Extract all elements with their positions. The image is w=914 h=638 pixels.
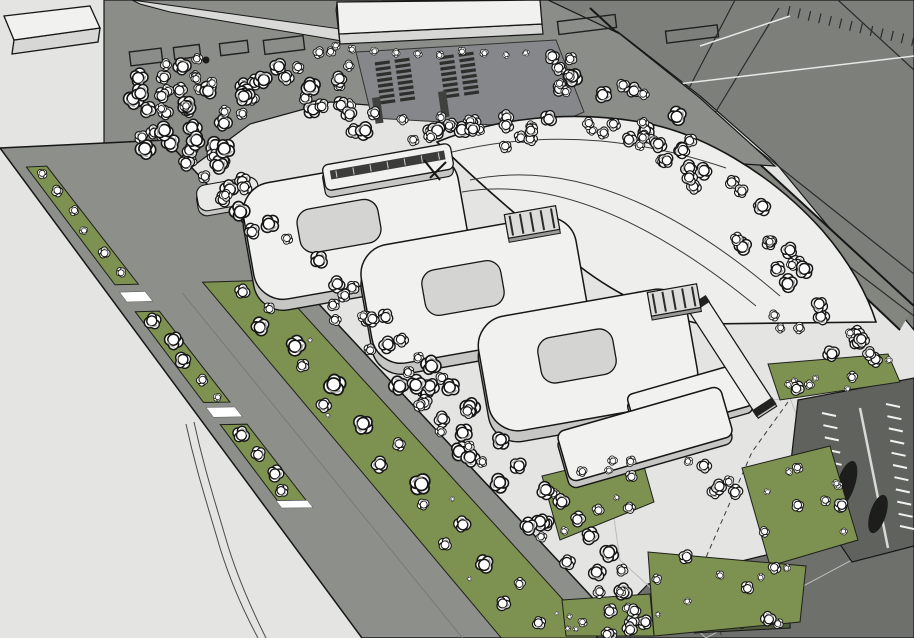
site-model-viewport[interactable] <box>0 0 914 638</box>
site-rendering-svg <box>0 0 914 638</box>
